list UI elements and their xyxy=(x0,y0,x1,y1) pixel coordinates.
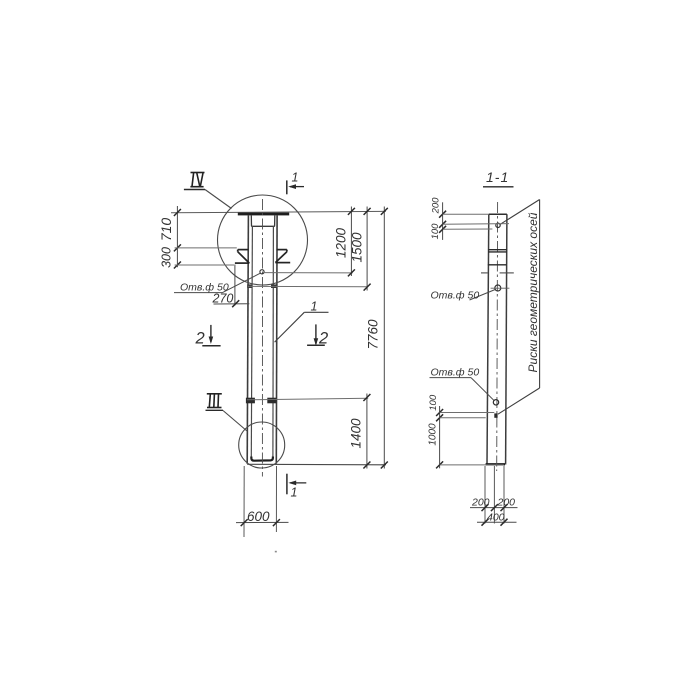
svg-text:Риски геометрических осей: Риски геометрических осей xyxy=(526,212,540,372)
svg-text:2: 2 xyxy=(195,330,205,348)
svg-text:200: 200 xyxy=(471,497,490,509)
svg-text:1: 1 xyxy=(292,171,299,185)
svg-text:100: 100 xyxy=(428,394,439,411)
svg-text:200: 200 xyxy=(497,497,516,509)
svg-text:1200: 1200 xyxy=(334,227,349,258)
svg-text:Отв.ф 50: Отв.ф 50 xyxy=(431,290,480,302)
svg-text:1500: 1500 xyxy=(350,232,365,263)
svg-text:270: 270 xyxy=(212,291,234,305)
svg-text:600: 600 xyxy=(247,509,270,524)
svg-text:400: 400 xyxy=(487,512,505,524)
svg-text:1-1: 1-1 xyxy=(486,169,509,185)
svg-text:1400: 1400 xyxy=(349,418,364,449)
svg-text:710: 710 xyxy=(158,218,174,242)
svg-text:1000: 1000 xyxy=(427,423,438,446)
svg-text:Отв.ф 50: Отв.ф 50 xyxy=(431,367,480,379)
svg-text:300: 300 xyxy=(160,247,174,268)
svg-text:1: 1 xyxy=(311,300,318,314)
svg-text:100: 100 xyxy=(430,223,441,240)
svg-text:7760: 7760 xyxy=(366,319,381,350)
svg-text:200: 200 xyxy=(431,197,442,215)
svg-text:1: 1 xyxy=(291,486,298,500)
